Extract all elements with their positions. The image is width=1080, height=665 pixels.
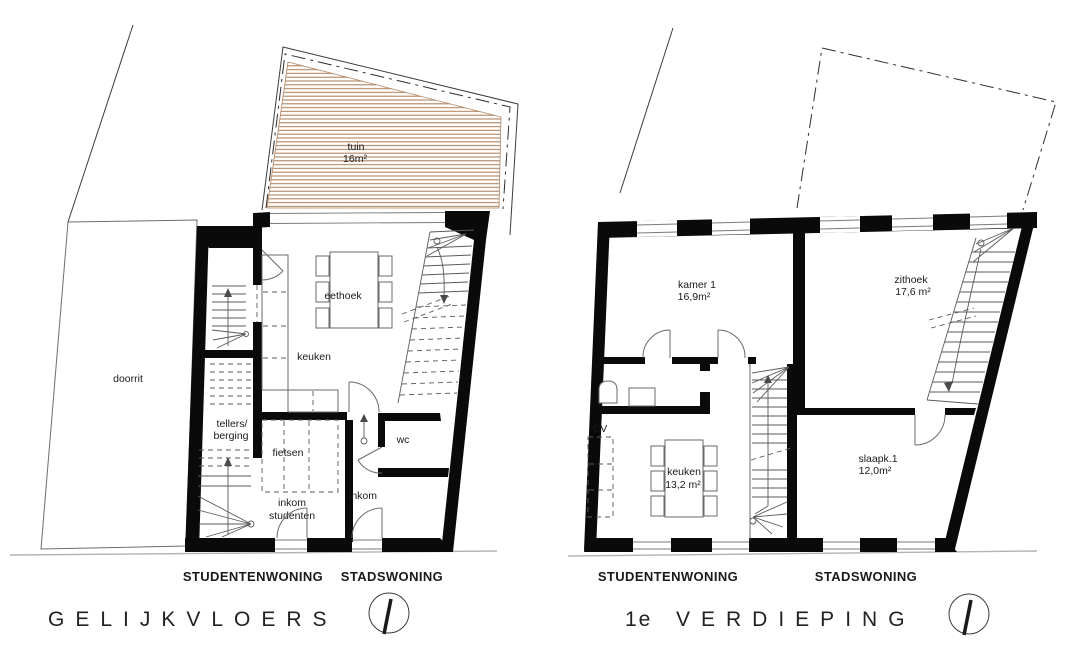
student-staircase-first	[750, 364, 791, 540]
toilet-icon	[599, 381, 617, 403]
floor-plan-sheet: doorrit tuin 16m²	[0, 0, 1080, 665]
sink-icon	[629, 388, 655, 406]
door-entry-stadswoning	[352, 508, 382, 538]
bathroom-fixtures	[599, 381, 655, 406]
cv-label: CV	[593, 423, 608, 435]
fietsen-label: fietsen	[273, 447, 304, 459]
wc-label: wc	[396, 434, 410, 446]
kitchen-wall-opening	[252, 285, 263, 322]
site-boundary-line-2	[620, 28, 673, 193]
keuken-label: keuken	[297, 351, 331, 363]
garden-decking	[267, 62, 501, 208]
plan-title-first: VERDIEPING	[676, 608, 916, 631]
door-slaapkamer	[915, 415, 945, 445]
garden-outline-dashdot	[797, 48, 1056, 210]
kitchen-counter	[262, 255, 338, 412]
plan-title-first-prefix: 1e	[625, 608, 652, 631]
tellers-label-line1: tellers/	[217, 418, 248, 430]
door-keuken	[349, 382, 379, 412]
unit-label-studentenwoning: STUDENTENWONING	[183, 569, 323, 584]
north-arrow-icon-2	[949, 594, 989, 635]
slaapk1-area: 12,0m²	[859, 465, 892, 477]
tuin-area: 16m²	[343, 153, 367, 165]
zithoek-area: 17,6 m²	[895, 286, 931, 298]
garden-tuin: tuin 16m²	[262, 47, 518, 235]
inkom-studenten-label-line1: inkom	[278, 497, 306, 509]
ground-floor-plan: doorrit tuin 16m²	[10, 25, 518, 634]
kamer1-label: kamer 1	[678, 279, 716, 291]
tuin-label: tuin	[348, 141, 365, 153]
unit-label-stadswoning: STADSWONING	[341, 569, 443, 584]
zithoek-label: zithoek	[894, 274, 928, 286]
floor-plan-drawing: doorrit tuin 16m²	[0, 0, 1080, 665]
keuken1e-area: 13,2 m²	[665, 479, 701, 491]
eethoek-label: eethoek	[324, 290, 362, 302]
door-kamer1-b	[718, 330, 745, 358]
plan-title-ground: GELIJKVLOERS	[48, 608, 338, 631]
keuken1e-label: keuken	[667, 466, 701, 478]
inkom-label: inkom	[349, 490, 377, 502]
first-floor-plan: CV keuken 13,2 m²	[568, 28, 1056, 635]
garden-facade-glazing	[270, 211, 445, 226]
north-arrow-icon	[369, 593, 409, 634]
slaapk1-label: slaapk.1	[858, 453, 897, 465]
kamer1-area: 16,9m²	[678, 291, 711, 303]
doorrit-label: doorrit	[113, 373, 143, 385]
student-staircase-upper	[212, 286, 249, 348]
door-kamer1-a	[643, 330, 670, 358]
student-staircase-lower	[198, 450, 254, 537]
entry-arrow	[360, 414, 368, 444]
unit-label-studentenwoning-2: STUDENTENWONING	[598, 569, 738, 584]
unit-label-stadswoning-2: STADSWONING	[815, 569, 917, 584]
site-boundary-line	[68, 25, 133, 222]
tellers-berging-shelving	[210, 364, 252, 404]
tellers-label-line2: berging	[213, 430, 248, 442]
